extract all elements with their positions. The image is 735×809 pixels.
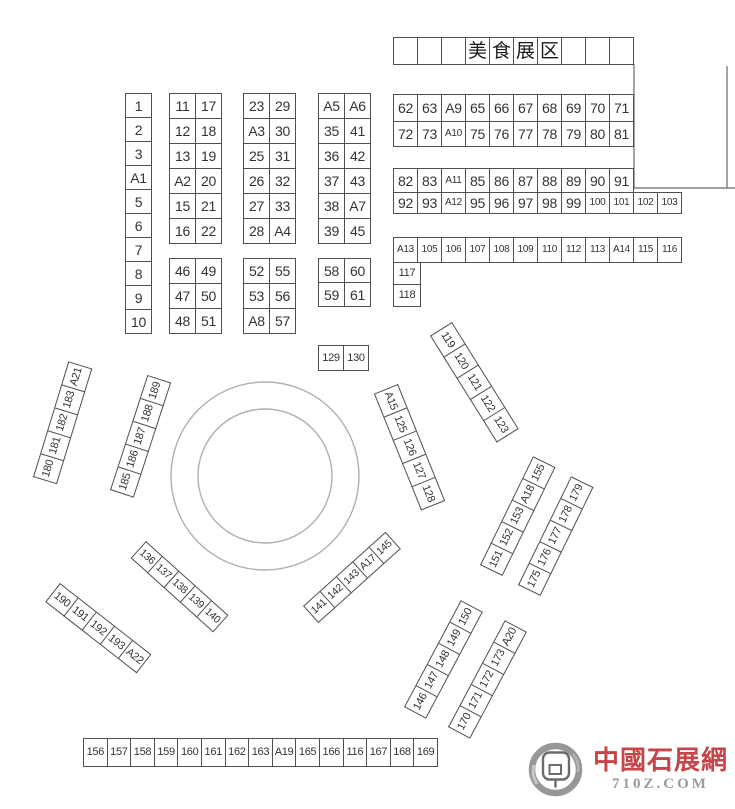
booth-cell-A6: A6 xyxy=(345,94,371,119)
booth-cell-A4: A4 xyxy=(270,219,296,244)
booth-cell-5: 5 xyxy=(126,190,152,214)
booth-cell-90: 90 xyxy=(586,169,610,193)
booth-cell-77: 77 xyxy=(514,122,538,147)
booth-cell-11: 11 xyxy=(170,94,196,119)
booth-cell-49: 49 xyxy=(196,259,222,284)
booth-row: 2632 xyxy=(244,169,296,194)
booth-cell-36: 36 xyxy=(319,144,345,169)
booth-row: A857 xyxy=(244,309,296,334)
booth-cell-美: 美 xyxy=(466,38,490,65)
booth-row: 9293A129596979899100101102103 xyxy=(394,193,682,214)
booth-cell-16: 16 xyxy=(170,219,196,244)
booth-cell-159: 159 xyxy=(155,739,179,767)
floor-plan: 中國石展網 710Z.COM 美食展区6263A9656667686970717… xyxy=(0,0,735,809)
booth-cell-71: 71 xyxy=(610,95,634,122)
booth-row: 7 xyxy=(126,238,152,262)
booth-cell-92: 92 xyxy=(394,193,418,214)
booth-row: 2531 xyxy=(244,144,296,169)
booth-cell-95: 95 xyxy=(466,193,490,214)
booth-cell-A8: A8 xyxy=(244,309,270,334)
booth-cell-43: 43 xyxy=(345,169,371,194)
block-23-34: 2329A33025312632273328A4 xyxy=(243,93,296,244)
booth-cell-41: 41 xyxy=(345,119,371,144)
booth-cell-17: 17 xyxy=(196,94,222,119)
booth-cell-8: 8 xyxy=(126,262,152,286)
booth-cell-47: 47 xyxy=(170,284,196,309)
booth-row: 3945 xyxy=(319,219,371,244)
booth-cell-46: 46 xyxy=(170,259,196,284)
empty-cell xyxy=(418,38,442,65)
booth-cell-109: 109 xyxy=(514,238,538,263)
booth-cell-168: 168 xyxy=(391,739,415,767)
booth-cell-35: 35 xyxy=(319,119,345,144)
booth-cell-102: 102 xyxy=(634,193,658,214)
booth-row: A1 xyxy=(126,166,152,190)
booth-row: 8283A1185868788899091 xyxy=(394,169,634,193)
booth-cell-68: 68 xyxy=(538,95,562,122)
booth-cell-162: 162 xyxy=(226,739,250,767)
center-circle xyxy=(198,409,332,543)
booth-cell-13: 13 xyxy=(170,144,196,169)
booth-cell-53: 53 xyxy=(244,284,270,309)
booth-row: 美食展区 xyxy=(394,38,634,65)
block-52-57: 52555356A857 xyxy=(243,258,296,334)
booth-cell-108: 108 xyxy=(490,238,514,263)
booth-cell-113: 113 xyxy=(586,238,610,263)
stone-seal-icon xyxy=(527,741,584,798)
booth-row: 4750 xyxy=(170,284,222,309)
col-117-118: 117118 xyxy=(393,262,421,307)
booth-cell-73: 73 xyxy=(418,122,442,147)
booth-cell-165: 165 xyxy=(296,739,320,767)
booth-cell-67: 67 xyxy=(514,95,538,122)
booth-row: 5961 xyxy=(319,283,371,307)
booth-cell-55: 55 xyxy=(270,259,296,284)
booth-cell-161: 161 xyxy=(202,739,226,767)
booth-cell-A5: A5 xyxy=(319,94,345,119)
booth-row: 28A4 xyxy=(244,219,296,244)
booth-cell-展: 展 xyxy=(514,38,538,65)
booth-cell-106: 106 xyxy=(442,238,466,263)
booth-cell-158: 158 xyxy=(131,739,155,767)
booth-row: 3743 xyxy=(319,169,371,194)
booth-cell-78: 78 xyxy=(538,122,562,147)
block-46-51: 464947504851 xyxy=(169,258,222,334)
booth-row: 5 xyxy=(126,190,152,214)
booth-cell-37: 37 xyxy=(319,169,345,194)
booth-cell-区: 区 xyxy=(538,38,562,65)
booth-row: 7273A1075767778798081 xyxy=(394,122,634,147)
booth-row: 4851 xyxy=(170,309,222,334)
booth-cell-38: 38 xyxy=(319,194,345,219)
logo: 中國石展網 710Z.COM xyxy=(527,741,728,798)
booth-cell-157: 157 xyxy=(108,739,132,767)
booth-row: 2329 xyxy=(244,94,296,119)
booth-cell-99: 99 xyxy=(562,193,586,214)
booth-cell-91: 91 xyxy=(610,169,634,193)
booth-cell-56: 56 xyxy=(270,284,296,309)
empty-cell xyxy=(586,38,610,65)
booth-cell-A10: A10 xyxy=(442,122,466,147)
booth-cell-59: 59 xyxy=(319,283,345,307)
block-58-61: 58605961 xyxy=(318,258,371,307)
booth-row: 3642 xyxy=(319,144,371,169)
booth-cell-A14: A14 xyxy=(610,238,634,263)
booth-cell-15: 15 xyxy=(170,194,196,219)
booth-cell-19: 19 xyxy=(196,144,222,169)
booth-cell-33: 33 xyxy=(270,194,296,219)
booth-cell-A1: A1 xyxy=(126,166,152,190)
booth-row: 1319 xyxy=(170,144,222,169)
booth-cell-A13: A13 xyxy=(394,238,418,263)
booth-row: 10 xyxy=(126,310,152,334)
booth-cell-2: 2 xyxy=(126,118,152,142)
booth-cell-62: 62 xyxy=(394,95,418,122)
booth-cell-103: 103 xyxy=(658,193,682,214)
booth-cell-66: 66 xyxy=(490,95,514,122)
booth-cell-3: 3 xyxy=(126,142,152,166)
booth-cell-117: 117 xyxy=(394,263,421,285)
booth-cell-101: 101 xyxy=(610,193,634,214)
booth-cell-45: 45 xyxy=(345,219,371,244)
booth-cell-89: 89 xyxy=(562,169,586,193)
booth-cell-26: 26 xyxy=(244,169,270,194)
booth-cell-52: 52 xyxy=(244,259,270,284)
booth-cell-110: 110 xyxy=(538,238,562,263)
booth-cell-18: 18 xyxy=(196,119,222,144)
booth-row: 156157158159160161162163A191651661161671… xyxy=(84,739,438,767)
booth-cell-60: 60 xyxy=(345,259,371,283)
booth-row: 2 xyxy=(126,118,152,142)
booth-cell-86: 86 xyxy=(490,169,514,193)
booth-cell-166: 166 xyxy=(320,739,344,767)
booth-cell-10: 10 xyxy=(126,310,152,334)
booth-cell-9: 9 xyxy=(126,286,152,310)
booth-cell-1: 1 xyxy=(126,94,152,118)
booth-cell-42: 42 xyxy=(345,144,371,169)
header-food-zone: 美食展区 xyxy=(393,37,634,65)
booth-cell-29: 29 xyxy=(270,94,296,119)
booth-cell-118: 118 xyxy=(394,285,421,307)
booth-row: 8 xyxy=(126,262,152,286)
booth-row: A220 xyxy=(170,169,222,194)
booth-row: 1 xyxy=(126,94,152,118)
booth-cell-129: 129 xyxy=(319,346,344,371)
booth-cell-72: 72 xyxy=(394,122,418,147)
booth-cell-21: 21 xyxy=(196,194,222,219)
booth-cell-116: 116 xyxy=(344,739,368,767)
booth-row: 2733 xyxy=(244,194,296,219)
booth-cell-82: 82 xyxy=(394,169,418,193)
booth-row: 9 xyxy=(126,286,152,310)
booth-cell-31: 31 xyxy=(270,144,296,169)
logo-name: 中國石展網 xyxy=(593,746,728,776)
booth-row: A5A6 xyxy=(319,94,371,119)
booth-cell-76: 76 xyxy=(490,122,514,147)
booth-cell-25: 25 xyxy=(244,144,270,169)
booth-cell-80: 80 xyxy=(586,122,610,147)
booth-cell-160: 160 xyxy=(178,739,202,767)
booth-cell-83: 83 xyxy=(418,169,442,193)
row-82-91: 8283A1185868788899091 xyxy=(393,168,634,193)
booth-cell-61: 61 xyxy=(345,283,371,307)
col-1-6: 123A156 xyxy=(125,93,152,238)
row-92-103: 9293A129596979899100101102103 xyxy=(393,192,682,214)
booth-cell-75: 75 xyxy=(466,122,490,147)
booth-cell-30: 30 xyxy=(270,119,296,144)
booth-cell-A2: A2 xyxy=(170,169,196,194)
booth-cell-70: 70 xyxy=(586,95,610,122)
booth-cell-163: 163 xyxy=(249,739,273,767)
block-35-45: A5A635413642374338A73945 xyxy=(318,93,371,244)
booth-row: 118 xyxy=(394,285,421,307)
booth-cell-79: 79 xyxy=(562,122,586,147)
block-11-22: 111712181319A22015211622 xyxy=(169,93,222,244)
booth-row: 1521 xyxy=(170,194,222,219)
booth-cell-105: 105 xyxy=(418,238,442,263)
booth-row: 129130 xyxy=(319,346,369,371)
booth-cell-23: 23 xyxy=(244,94,270,119)
booth-cell-22: 22 xyxy=(196,219,222,244)
booth-cell-96: 96 xyxy=(490,193,514,214)
center-circle xyxy=(171,382,359,570)
booth-cell-12: 12 xyxy=(170,119,196,144)
booth-cell-20: 20 xyxy=(196,169,222,194)
booth-cell-97: 97 xyxy=(514,193,538,214)
booth-cell-116: 116 xyxy=(658,238,682,263)
booth-cell-51: 51 xyxy=(196,309,222,334)
booth-cell-6: 6 xyxy=(126,214,152,238)
empty-cell xyxy=(394,38,418,65)
booth-row: 1117 xyxy=(170,94,222,119)
booth-cell-32: 32 xyxy=(270,169,296,194)
booth-row: 6 xyxy=(126,214,152,238)
booth-cell-100: 100 xyxy=(586,193,610,214)
booth-row: 117 xyxy=(394,263,421,285)
booth-cell-167: 167 xyxy=(367,739,391,767)
booth-cell-48: 48 xyxy=(170,309,196,334)
booth-cell-39: 39 xyxy=(319,219,345,244)
booth-cell-57: 57 xyxy=(270,309,296,334)
booth-cell-28: 28 xyxy=(244,219,270,244)
booth-row: 6263A965666768697071 xyxy=(394,95,634,122)
booth-cell-食: 食 xyxy=(490,38,514,65)
pair-129-130: 129130 xyxy=(318,345,369,371)
empty-cell xyxy=(610,38,634,65)
booth-cell-87: 87 xyxy=(514,169,538,193)
booth-cell-A9: A9 xyxy=(442,95,466,122)
booth-cell-98: 98 xyxy=(538,193,562,214)
booth-cell-88: 88 xyxy=(538,169,562,193)
booth-row: 5255 xyxy=(244,259,296,284)
booth-row: 3541 xyxy=(319,119,371,144)
booth-cell-65: 65 xyxy=(466,95,490,122)
booth-cell-63: 63 xyxy=(418,95,442,122)
col-7-10: 78910 xyxy=(125,237,152,334)
booth-cell-81: 81 xyxy=(610,122,634,147)
booth-row: 3 xyxy=(126,142,152,166)
booth-cell-156: 156 xyxy=(84,739,108,767)
booth-cell-50: 50 xyxy=(196,284,222,309)
booth-cell-69: 69 xyxy=(562,95,586,122)
booth-row: 1218 xyxy=(170,119,222,144)
row-156-169: 156157158159160161162163A191651661161671… xyxy=(83,738,438,767)
booth-cell-A12: A12 xyxy=(442,193,466,214)
booth-cell-115: 115 xyxy=(634,238,658,263)
booth-row: A330 xyxy=(244,119,296,144)
booth-cell-A7: A7 xyxy=(345,194,371,219)
row-72-81: 7273A1075767778798081 xyxy=(393,121,634,147)
empty-cell xyxy=(562,38,586,65)
booth-row: 1622 xyxy=(170,219,222,244)
booth-row: A13105106107108109110112113A14115116 xyxy=(394,238,682,263)
booth-cell-A3: A3 xyxy=(244,119,270,144)
empty-cell xyxy=(442,38,466,65)
booth-cell-107: 107 xyxy=(466,238,490,263)
logo-domain: 710Z.COM xyxy=(612,776,709,793)
booth-row: 5860 xyxy=(319,259,371,283)
booth-row: 4649 xyxy=(170,259,222,284)
booth-cell-169: 169 xyxy=(414,739,438,767)
row-62-71: 6263A965666768697071 xyxy=(393,94,634,122)
booth-row: 5356 xyxy=(244,284,296,309)
booth-cell-7: 7 xyxy=(126,238,152,262)
row-a13-116: A13105106107108109110112113A14115116 xyxy=(393,237,682,263)
booth-cell-85: 85 xyxy=(466,169,490,193)
booth-cell-112: 112 xyxy=(562,238,586,263)
booth-row: 38A7 xyxy=(319,194,371,219)
booth-cell-130: 130 xyxy=(344,346,369,371)
booth-cell-27: 27 xyxy=(244,194,270,219)
booth-cell-A19: A19 xyxy=(273,739,297,767)
booth-cell-93: 93 xyxy=(418,193,442,214)
booth-cell-A11: A11 xyxy=(442,169,466,193)
booth-cell-58: 58 xyxy=(319,259,345,283)
